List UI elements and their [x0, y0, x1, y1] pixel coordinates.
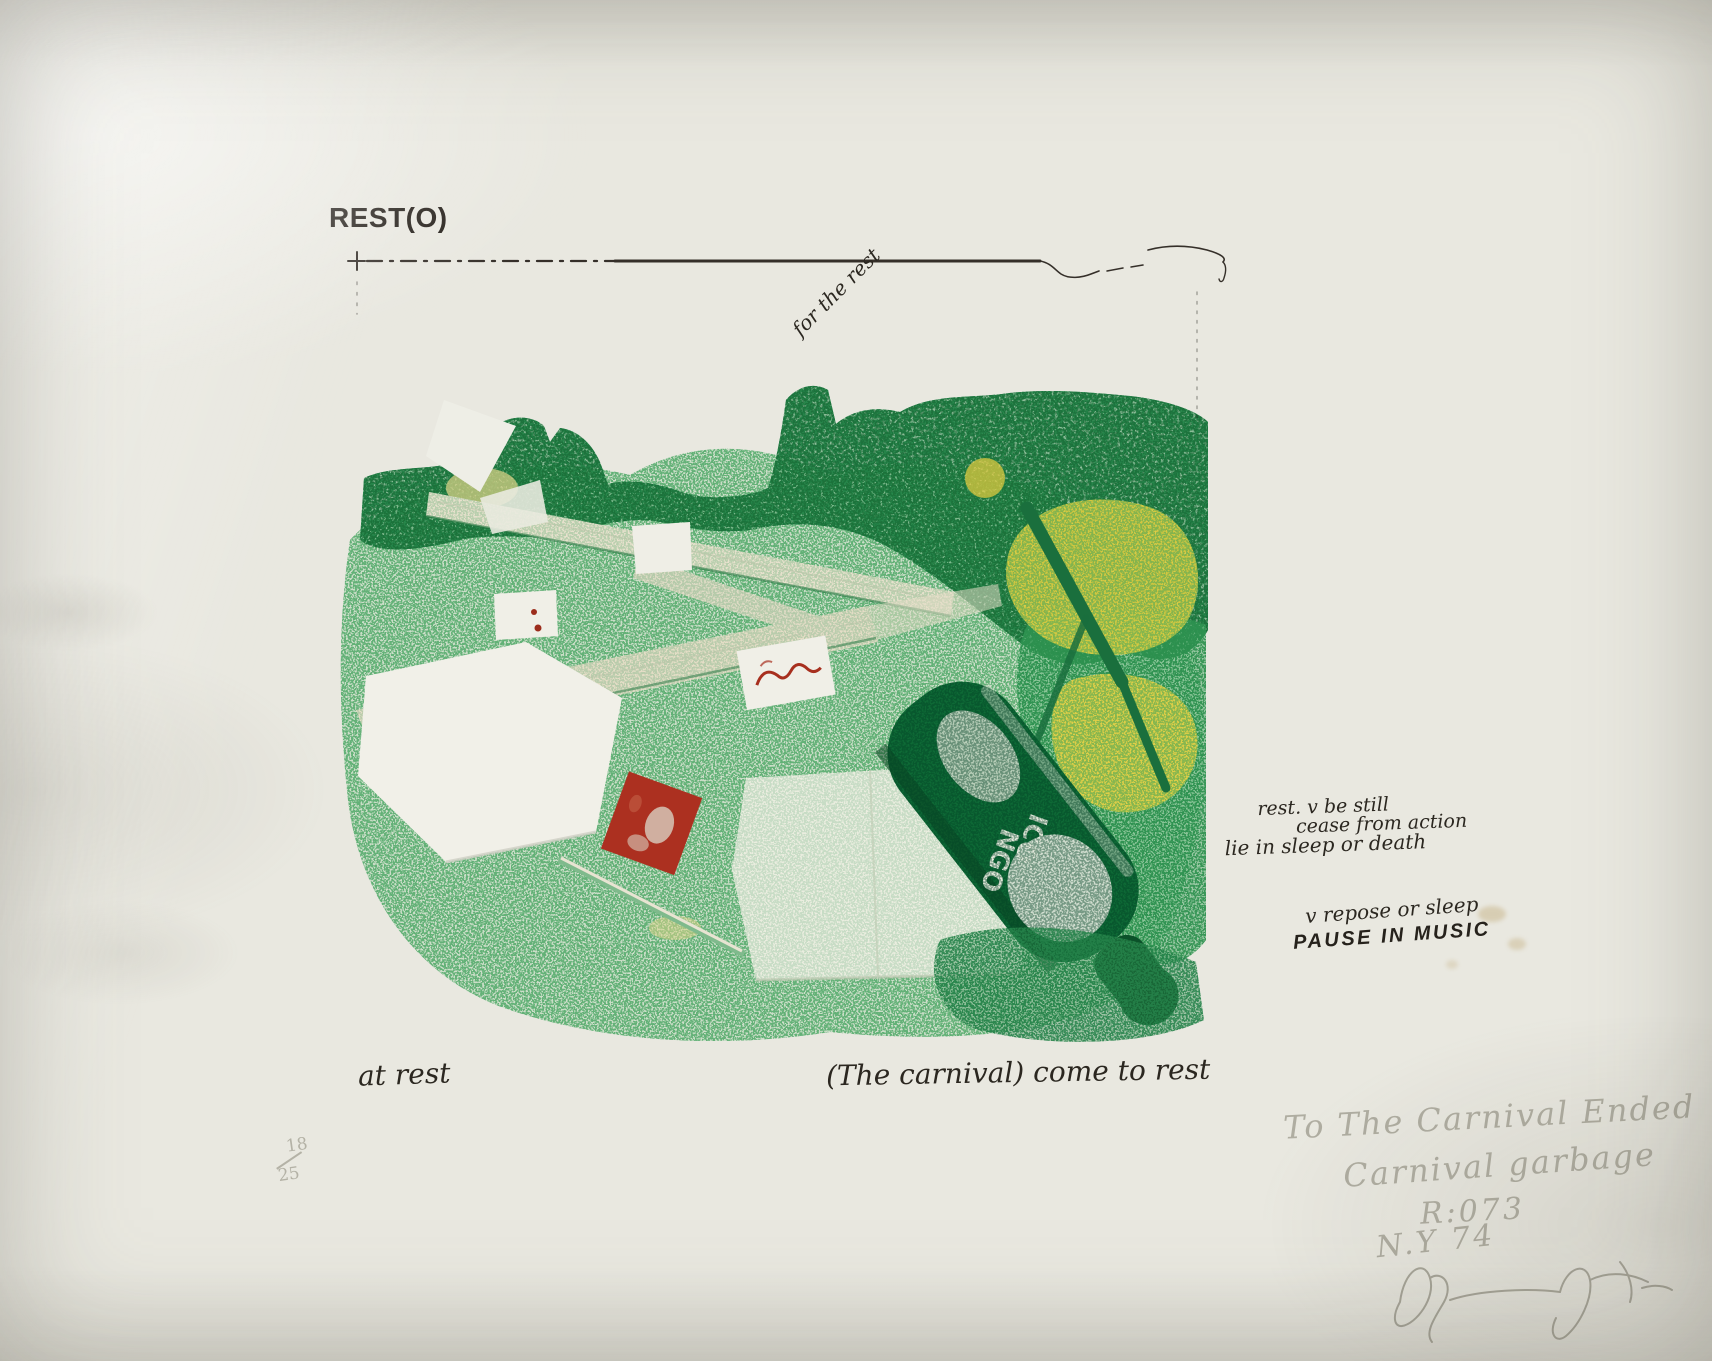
photograph-of-print: REST(O) for the rest [0, 0, 1712, 1361]
artist-signature [1380, 1240, 1680, 1355]
caption-at-rest: at rest [357, 1056, 451, 1092]
paper-stain [1446, 960, 1458, 969]
print-title: REST(O) [329, 202, 448, 234]
definition-note-line3: lie in sleep or death [1224, 831, 1468, 858]
edition-number: 18 25 [273, 1134, 313, 1186]
screenprint-image: ICO NGO [330, 380, 1214, 1048]
caption-carnival: (The carnival) come to rest [826, 1053, 1211, 1093]
pencil-inscription-line2: Carnival garbage [1342, 1135, 1657, 1195]
definition-note: rest. v be still cease from action lie i… [1223, 793, 1468, 858]
repose-note: v repose or sleep PAUSE IN MUSIC [1290, 891, 1491, 955]
paper-stain [1508, 938, 1526, 950]
